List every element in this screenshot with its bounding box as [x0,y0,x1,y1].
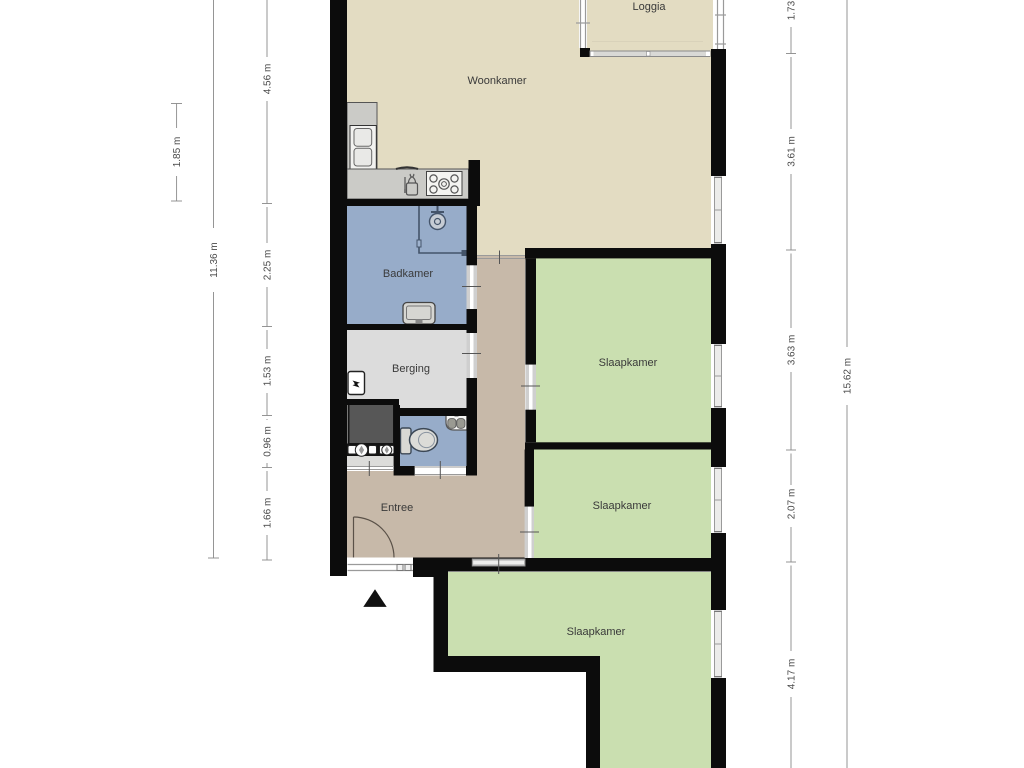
svg-text:3.61 m: 3.61 m [787,136,798,167]
svg-text:Berging: Berging [392,363,430,375]
svg-text:Slaapkamer: Slaapkamer [599,357,658,369]
svg-text:Badkamer: Badkamer [383,268,433,280]
svg-text:1.53 m: 1.53 m [263,356,274,387]
svg-text:Woonkamer: Woonkamer [467,75,526,87]
svg-text:Slaapkamer: Slaapkamer [567,626,626,638]
svg-text:2.25 m: 2.25 m [263,250,274,281]
svg-text:1.85 m: 1.85 m [172,137,183,168]
svg-text:Slaapkamer: Slaapkamer [593,500,652,512]
svg-text:15.62 m: 15.62 m [843,358,854,394]
svg-text:Loggia: Loggia [632,1,666,13]
svg-text:0.96 m: 0.96 m [263,426,274,457]
svg-text:4.56 m: 4.56 m [263,64,274,95]
svg-text:2.07 m: 2.07 m [787,489,798,520]
svg-text:Entree: Entree [381,502,413,514]
svg-text:1.73 m: 1.73 m [787,0,798,20]
svg-text:11.36 m: 11.36 m [209,242,220,277]
svg-text:3.63 m: 3.63 m [787,335,798,366]
svg-text:4.17 m: 4.17 m [787,659,798,690]
svg-text:1.66 m: 1.66 m [263,498,274,529]
